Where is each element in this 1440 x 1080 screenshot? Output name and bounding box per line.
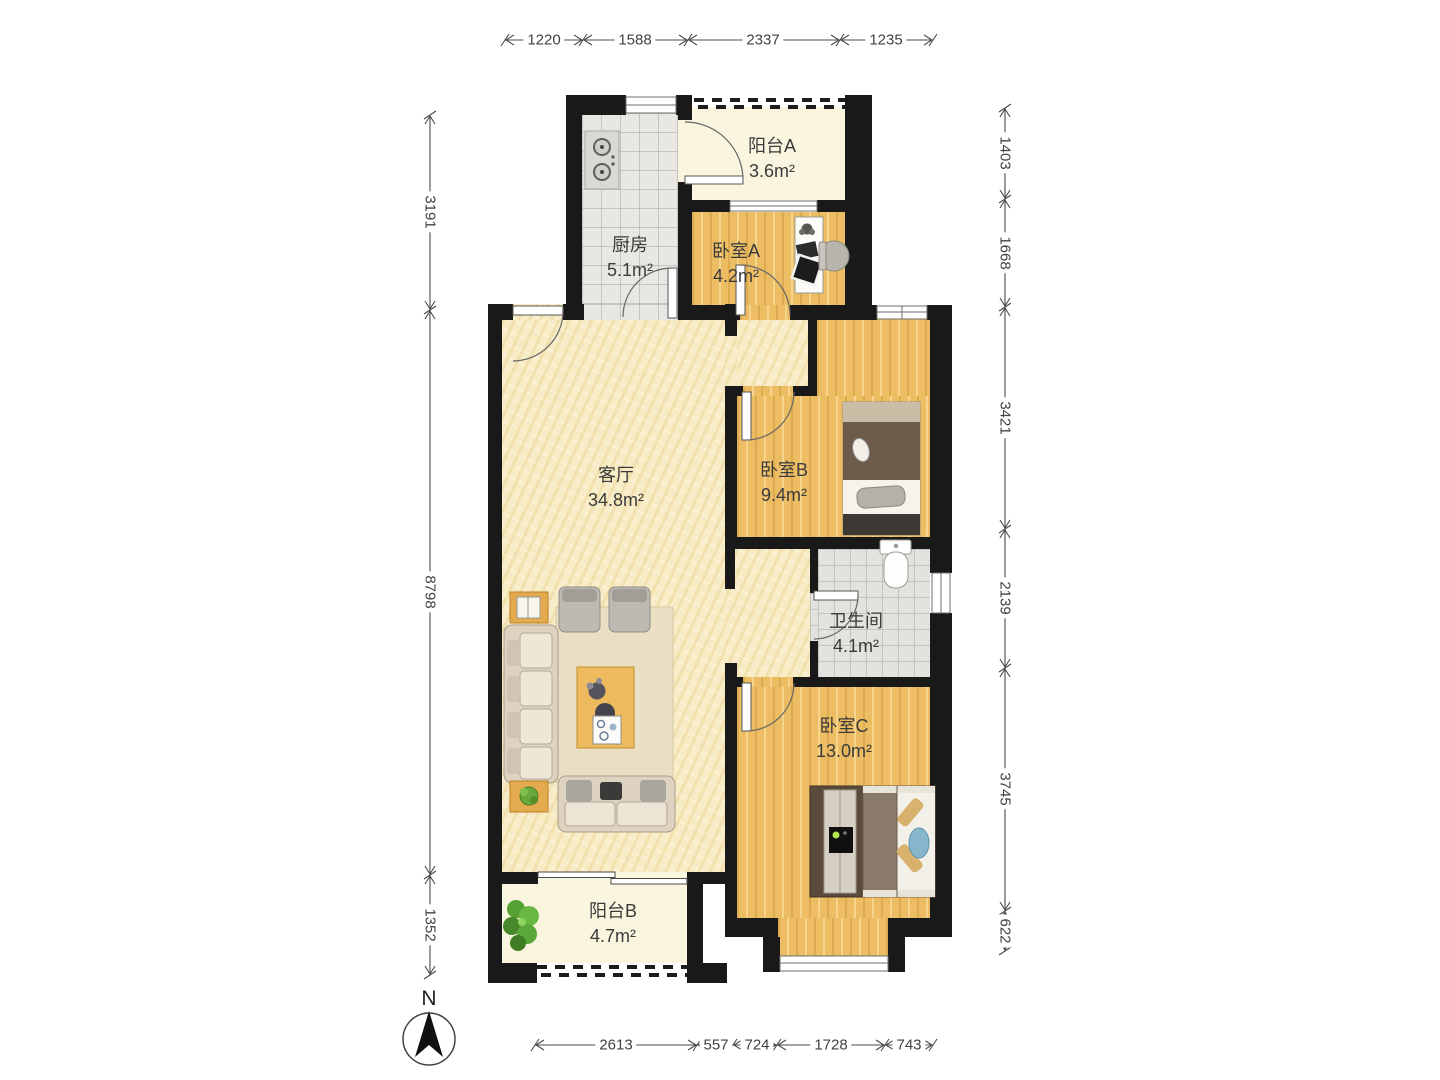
balcony-b-sliding-door — [538, 872, 687, 884]
room-area: 5.1m² — [607, 258, 653, 283]
armchair — [609, 587, 650, 632]
dim-bottom-2: 724 — [740, 1037, 773, 1054]
room-name: 卫生间 — [829, 609, 883, 634]
toilet — [880, 540, 911, 588]
room-area: 3.6m² — [749, 159, 795, 184]
room-name: 卧室B — [760, 458, 808, 483]
room-name: 客厅 — [598, 463, 634, 488]
desk-chair — [819, 241, 849, 271]
dim-bottom-1: 557 — [699, 1037, 732, 1054]
floor-plan: 阳台A 3.6m² 厨房 5.1m² 卧室A 4.2m² 客厅 34.8m² 卧… — [0, 0, 1440, 1080]
wardrobe — [810, 786, 863, 897]
room-label-balcony-a: 阳台A 3.6m² — [748, 134, 796, 184]
armchair — [559, 587, 600, 632]
room-label-bathroom: 卫生间 4.1m² — [829, 609, 883, 659]
north-arrow — [403, 1011, 455, 1065]
balcony-a-railing — [694, 100, 845, 107]
bedroom-c-door — [742, 683, 794, 731]
bay-window — [780, 956, 888, 971]
bed-bedroom-b — [843, 402, 920, 535]
kitchen-window — [626, 97, 676, 113]
dim-top-2: 2337 — [742, 32, 783, 49]
side-table-lamp — [510, 592, 548, 623]
sofa-left — [504, 625, 558, 783]
dim-top-3: 1235 — [865, 32, 906, 49]
balcony-a-door — [685, 122, 743, 184]
room-area: 13.0m² — [816, 739, 872, 764]
dim-bottom-3: 1728 — [810, 1037, 851, 1054]
stove — [585, 131, 619, 189]
room-label-balcony-b: 阳台B 4.7m² — [589, 899, 637, 949]
dim-right-5: 622 — [997, 914, 1014, 947]
room-name: 阳台B — [589, 899, 637, 924]
dim-left-2: 1352 — [422, 904, 439, 945]
room-area: 9.4m² — [761, 483, 807, 508]
dimension-lines — [424, 34, 1011, 1051]
dim-top-1: 1588 — [614, 32, 655, 49]
dim-right-0: 1403 — [997, 132, 1014, 173]
sofa-bottom — [558, 776, 675, 832]
room-label-living-room: 客厅 34.8m² — [588, 463, 644, 513]
room-area: 4.2m² — [713, 264, 759, 289]
balcony-a-bedroom-a-window — [730, 201, 817, 211]
balcony-b-railing — [537, 967, 687, 975]
desk — [792, 217, 823, 293]
bed-bedroom-c — [863, 786, 935, 897]
room-name: 阳台A — [748, 134, 796, 159]
room-name: 卧室A — [712, 239, 760, 264]
room-label-bedroom-b: 卧室B 9.4m² — [760, 458, 808, 508]
dim-top-0: 1220 — [523, 32, 564, 49]
side-table-plant — [510, 781, 548, 812]
entrance-door — [513, 306, 563, 361]
dim-bottom-0: 2613 — [595, 1037, 636, 1054]
dim-left-0: 3191 — [422, 191, 439, 232]
dim-right-4: 3745 — [997, 768, 1014, 809]
dim-right-2: 3421 — [997, 397, 1014, 438]
room-label-bedroom-a: 卧室A 4.2m² — [712, 239, 760, 289]
plant — [503, 900, 539, 951]
bedroom-b-door — [742, 392, 794, 440]
room-area: 34.8m² — [588, 488, 644, 513]
bedroom-b-window — [877, 306, 927, 319]
dim-right-1: 1668 — [997, 232, 1014, 273]
dim-left-1: 8798 — [422, 571, 439, 612]
room-name: 卧室C — [820, 714, 869, 739]
coffee-table — [577, 667, 634, 748]
room-area: 4.7m² — [590, 924, 636, 949]
room-area: 4.1m² — [833, 634, 879, 659]
bathroom-window — [932, 573, 950, 613]
dim-bottom-4: 743 — [892, 1037, 925, 1054]
room-label-kitchen: 厨房 5.1m² — [607, 233, 653, 283]
room-label-bedroom-c: 卧室C 13.0m² — [816, 714, 872, 764]
dim-right-3: 2139 — [997, 577, 1014, 618]
north-label: N — [421, 987, 436, 1011]
plan-overlay — [0, 0, 1440, 1080]
room-name: 厨房 — [612, 233, 648, 258]
